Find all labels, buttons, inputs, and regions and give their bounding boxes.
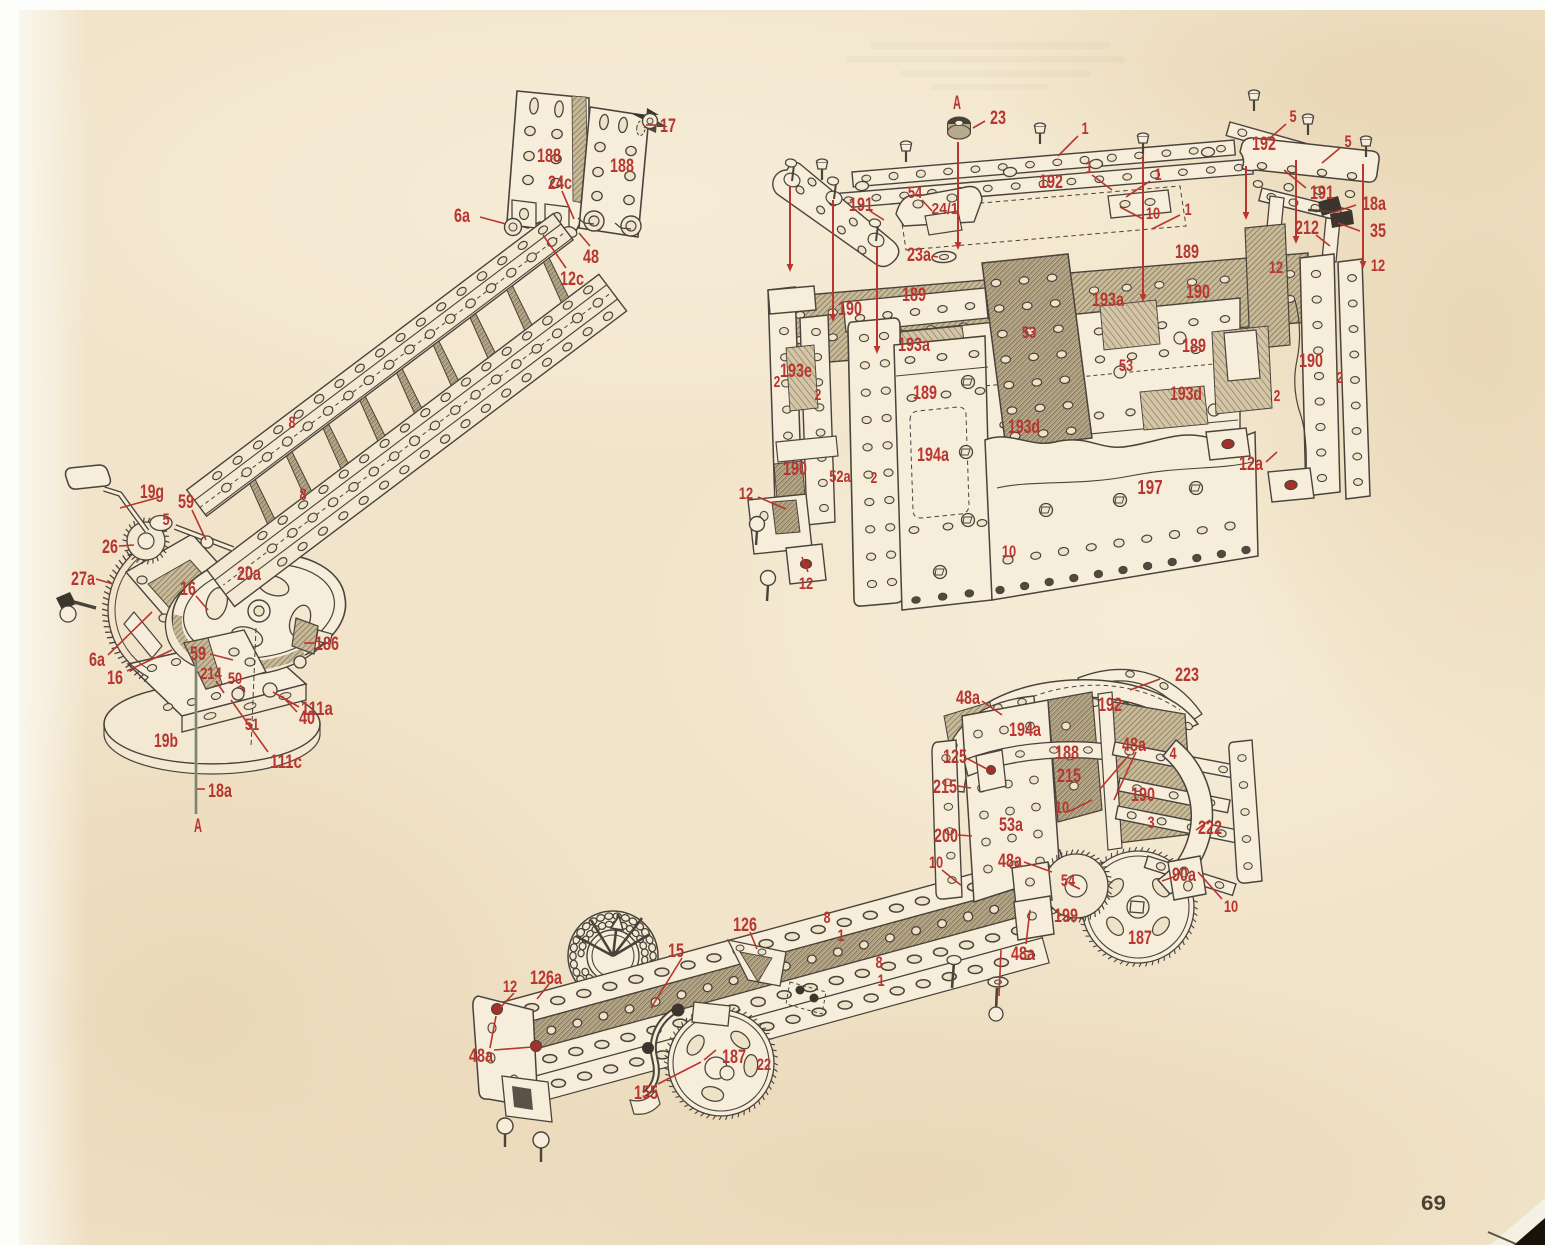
svg-text:189: 189 — [1182, 336, 1206, 357]
svg-text:6a: 6a — [89, 650, 105, 671]
svg-text:54: 54 — [908, 183, 923, 202]
svg-text:19b: 19b — [154, 731, 178, 752]
svg-text:188: 188 — [610, 156, 634, 177]
svg-text:215: 215 — [1057, 766, 1081, 787]
svg-text:111a: 111a — [301, 699, 333, 720]
svg-text:2: 2 — [871, 470, 878, 487]
svg-text:2: 2 — [1274, 388, 1281, 405]
svg-text:5: 5 — [1344, 132, 1351, 151]
svg-text:125: 125 — [943, 747, 967, 768]
svg-text:111c: 111c — [270, 752, 302, 773]
svg-text:48a: 48a — [1011, 944, 1035, 965]
svg-text:51: 51 — [245, 715, 259, 734]
svg-text:1: 1 — [877, 971, 884, 990]
svg-text:54: 54 — [1061, 871, 1076, 890]
svg-text:10: 10 — [1002, 542, 1016, 561]
svg-text:48a: 48a — [469, 1046, 493, 1067]
svg-text:192: 192 — [1039, 172, 1063, 193]
svg-text:2: 2 — [774, 374, 781, 391]
svg-text:2: 2 — [1337, 370, 1344, 387]
svg-text:8: 8 — [288, 413, 295, 432]
svg-text:193d: 193d — [1008, 417, 1040, 438]
svg-text:12: 12 — [739, 484, 753, 503]
svg-text:5: 5 — [162, 510, 169, 529]
svg-text:189: 189 — [1175, 242, 1199, 263]
svg-text:16: 16 — [180, 579, 196, 600]
svg-text:194a: 194a — [1009, 720, 1041, 741]
svg-text:5: 5 — [1289, 107, 1296, 126]
svg-text:24c: 24c — [548, 173, 572, 194]
svg-text:193a: 193a — [1092, 290, 1124, 311]
svg-text:2: 2 — [815, 387, 822, 404]
svg-text:192: 192 — [1098, 695, 1122, 716]
svg-text:188: 188 — [537, 146, 561, 167]
svg-text:126: 126 — [733, 915, 757, 936]
svg-text:53: 53 — [1119, 356, 1133, 375]
svg-text:12: 12 — [503, 977, 517, 996]
svg-text:17: 17 — [660, 116, 676, 137]
svg-text:6a: 6a — [454, 206, 470, 227]
svg-text:1: 1 — [1184, 200, 1191, 219]
svg-text:50: 50 — [228, 669, 242, 688]
svg-text:188: 188 — [1055, 743, 1079, 764]
svg-text:48a: 48a — [956, 688, 980, 709]
svg-text:8: 8 — [875, 953, 882, 972]
svg-text:197: 197 — [1137, 477, 1162, 499]
svg-text:1: 1 — [837, 926, 844, 945]
svg-text:190: 190 — [1131, 785, 1155, 806]
svg-text:189: 189 — [913, 383, 937, 404]
svg-text:126a: 126a — [530, 968, 562, 989]
svg-text:223: 223 — [1175, 665, 1199, 686]
svg-text:193e: 193e — [780, 361, 812, 382]
svg-text:190: 190 — [1186, 282, 1210, 303]
svg-text:4: 4 — [1169, 744, 1176, 763]
svg-text:189: 189 — [902, 285, 926, 306]
svg-text:191: 191 — [849, 195, 873, 216]
svg-text:10: 10 — [1055, 798, 1069, 817]
svg-text:24/1: 24/1 — [932, 201, 959, 218]
svg-text:27a: 27a — [71, 569, 95, 590]
svg-text:193a: 193a — [898, 335, 930, 356]
svg-text:18a: 18a — [1362, 194, 1386, 215]
svg-text:191: 191 — [1310, 183, 1334, 204]
svg-text:8: 8 — [823, 908, 830, 927]
svg-text:212: 212 — [1295, 218, 1319, 239]
svg-text:A: A — [194, 816, 202, 837]
svg-text:69: 69 — [1421, 1192, 1446, 1215]
svg-text:53a: 53a — [999, 815, 1023, 836]
svg-text:12: 12 — [799, 574, 813, 593]
svg-text:1: 1 — [1081, 119, 1088, 138]
svg-text:199: 199 — [1054, 906, 1078, 927]
svg-text:22: 22 — [757, 1055, 771, 1074]
svg-text:26: 26 — [102, 537, 118, 558]
svg-text:53: 53 — [1022, 323, 1036, 342]
svg-text:59: 59 — [178, 492, 194, 513]
svg-text:155: 155 — [634, 1083, 658, 1104]
svg-text:214: 214 — [200, 664, 222, 683]
svg-text:16: 16 — [107, 668, 123, 689]
svg-text:20a: 20a — [237, 564, 261, 585]
svg-text:187: 187 — [1128, 928, 1152, 949]
svg-text:190: 190 — [838, 299, 862, 320]
svg-text:215: 215 — [933, 777, 957, 798]
svg-text:10: 10 — [929, 853, 943, 872]
svg-text:10: 10 — [1146, 204, 1160, 223]
svg-text:222: 222 — [1198, 818, 1222, 839]
svg-text:23: 23 — [990, 108, 1006, 129]
svg-text:3: 3 — [1147, 813, 1154, 832]
svg-text:190: 190 — [1299, 351, 1323, 372]
svg-text:12a: 12a — [1239, 454, 1263, 475]
svg-text:18a: 18a — [208, 781, 232, 802]
svg-text:48a: 48a — [1122, 735, 1146, 756]
svg-text:48: 48 — [583, 247, 599, 268]
svg-text:19g: 19g — [140, 482, 164, 503]
svg-text:194a: 194a — [917, 445, 949, 466]
svg-text:186: 186 — [315, 634, 339, 655]
svg-text:190: 190 — [783, 459, 807, 480]
svg-text:15: 15 — [668, 941, 684, 962]
svg-text:10: 10 — [1224, 897, 1238, 916]
svg-text:8: 8 — [299, 485, 306, 504]
svg-text:12: 12 — [1269, 258, 1283, 277]
svg-text:59: 59 — [190, 644, 206, 665]
svg-text:90a: 90a — [1172, 865, 1196, 886]
svg-text:1: 1 — [1085, 158, 1092, 177]
svg-text:52a: 52a — [829, 467, 851, 486]
svg-text:48a: 48a — [998, 851, 1022, 872]
svg-text:187: 187 — [722, 1047, 746, 1068]
svg-text:23a: 23a — [907, 245, 931, 266]
svg-text:193d: 193d — [1170, 384, 1202, 405]
svg-text:1: 1 — [1154, 165, 1161, 184]
svg-text:200: 200 — [934, 826, 958, 847]
svg-text:12c: 12c — [560, 269, 584, 290]
svg-text:192: 192 — [1252, 134, 1276, 155]
svg-text:A: A — [953, 93, 961, 114]
svg-text:35: 35 — [1370, 221, 1386, 242]
svg-text:12: 12 — [1371, 256, 1385, 275]
